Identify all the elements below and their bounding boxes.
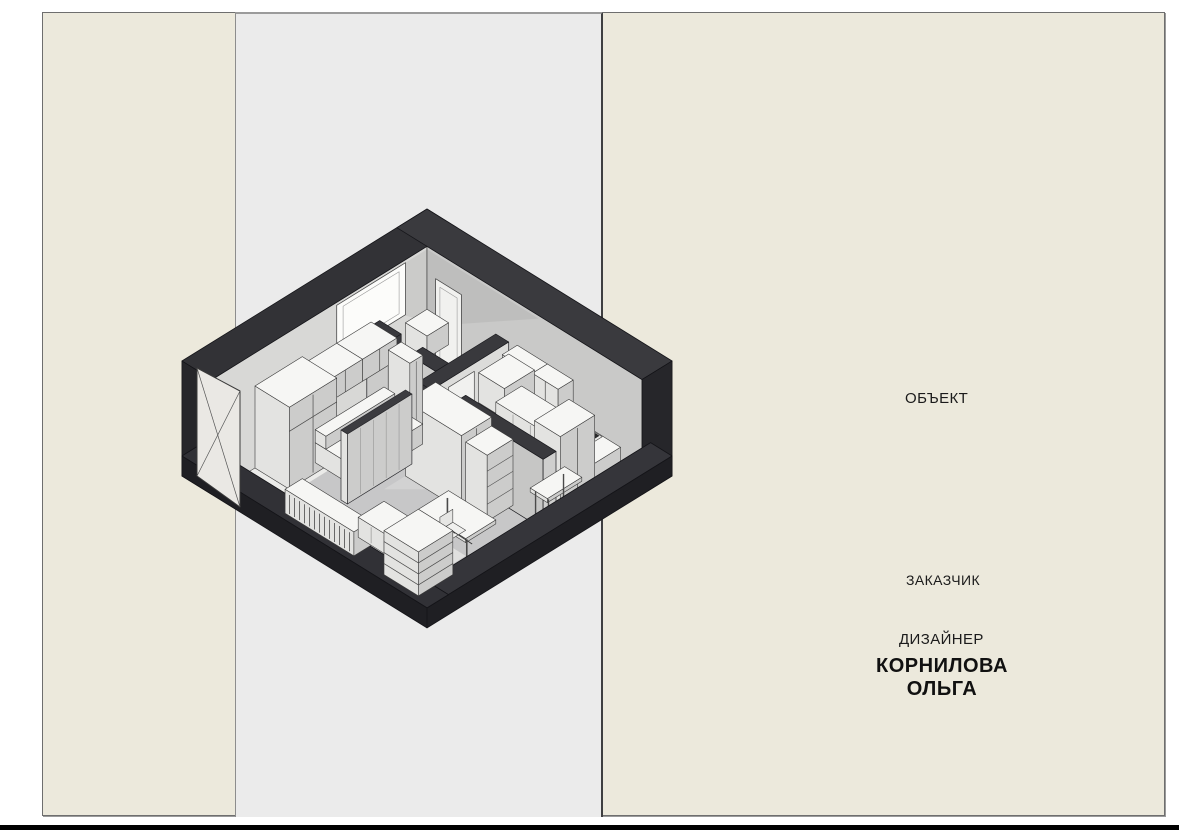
designer-label: ДИЗАЙНЕР: [899, 632, 984, 648]
designer-name-second: ОЛЬГА: [857, 678, 1027, 701]
bottom-divider-bar: [0, 825, 1179, 830]
apartment-isometric-view: [0, 0, 1179, 833]
designer-name: КОРНИЛОВА ОЛЬГА: [857, 655, 1027, 701]
presentation-board: ОБЪЕКТ ЗАКАЗЧИК ДИЗАЙНЕР КОРНИЛОВА ОЛЬГА: [0, 0, 1179, 833]
designer-name-first: КОРНИЛОВА: [857, 655, 1027, 678]
object-label: ОБЪЕКТ: [905, 391, 968, 407]
client-label: ЗАКАЗЧИК: [906, 572, 980, 588]
